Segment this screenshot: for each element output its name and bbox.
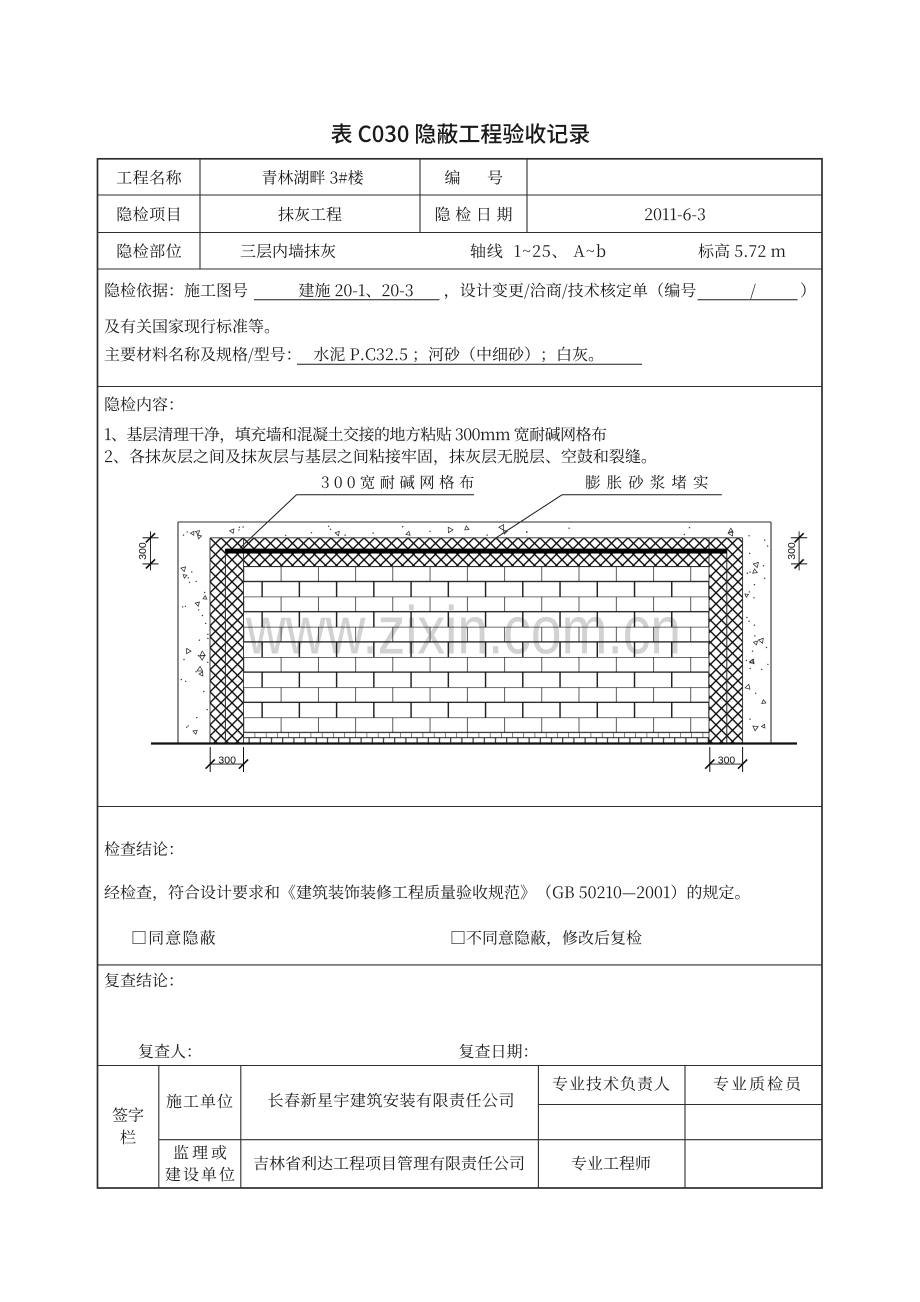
svg-text:300: 300: [718, 755, 736, 767]
svg-text:300: 300: [137, 542, 149, 560]
svg-text:300: 300: [218, 755, 236, 767]
svg-text:300: 300: [786, 542, 798, 560]
